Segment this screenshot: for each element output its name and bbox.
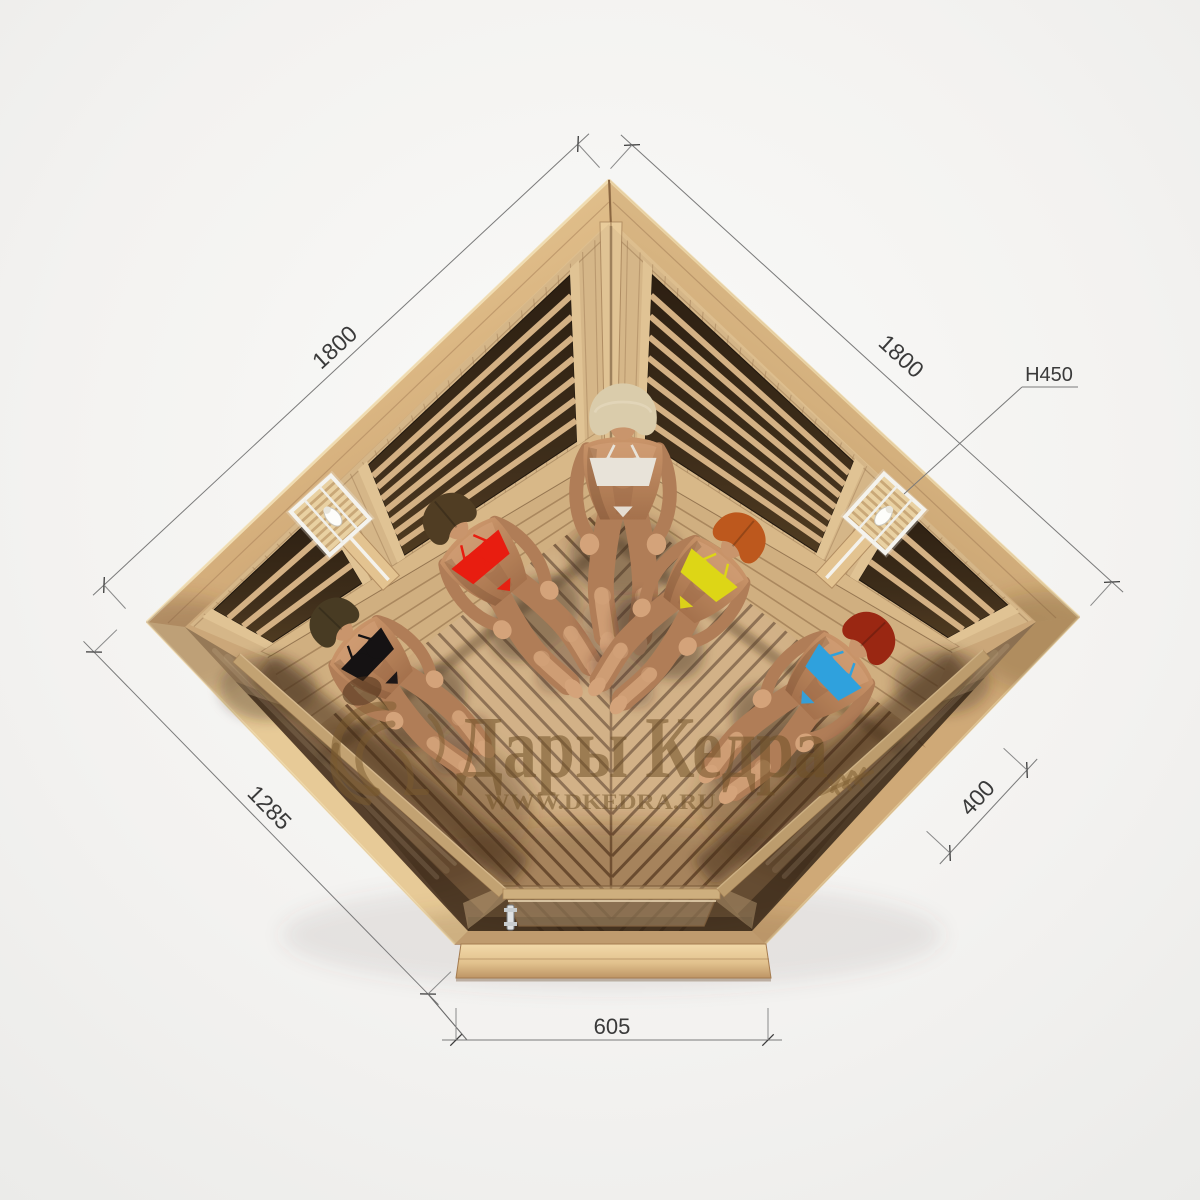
svg-text:WWW.DKEDRA.RU: WWW.DKEDRA.RU — [485, 789, 716, 814]
svg-text:H450: H450 — [1025, 364, 1073, 386]
svg-text:605: 605 — [594, 1014, 631, 1039]
svg-text:Дары Кедра: Дары Кедра — [456, 700, 828, 797]
